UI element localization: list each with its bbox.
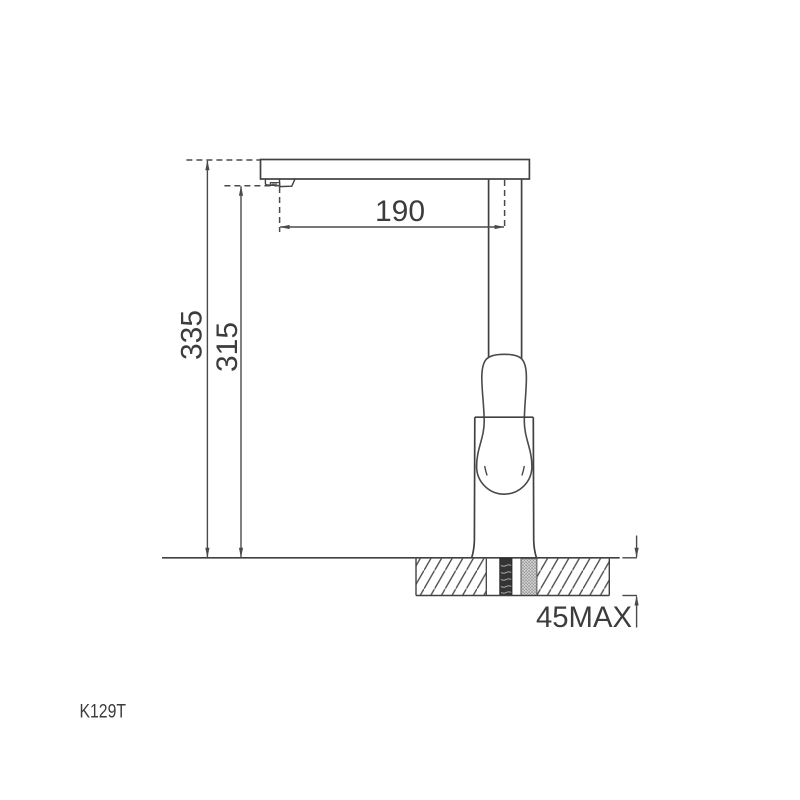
svg-text:190: 190	[375, 195, 425, 228]
svg-text:K129T: K129T	[80, 702, 127, 723]
svg-text:335: 335	[176, 310, 209, 360]
svg-text:315: 315	[211, 322, 244, 372]
svg-text:45MAX: 45MAX	[536, 601, 632, 634]
